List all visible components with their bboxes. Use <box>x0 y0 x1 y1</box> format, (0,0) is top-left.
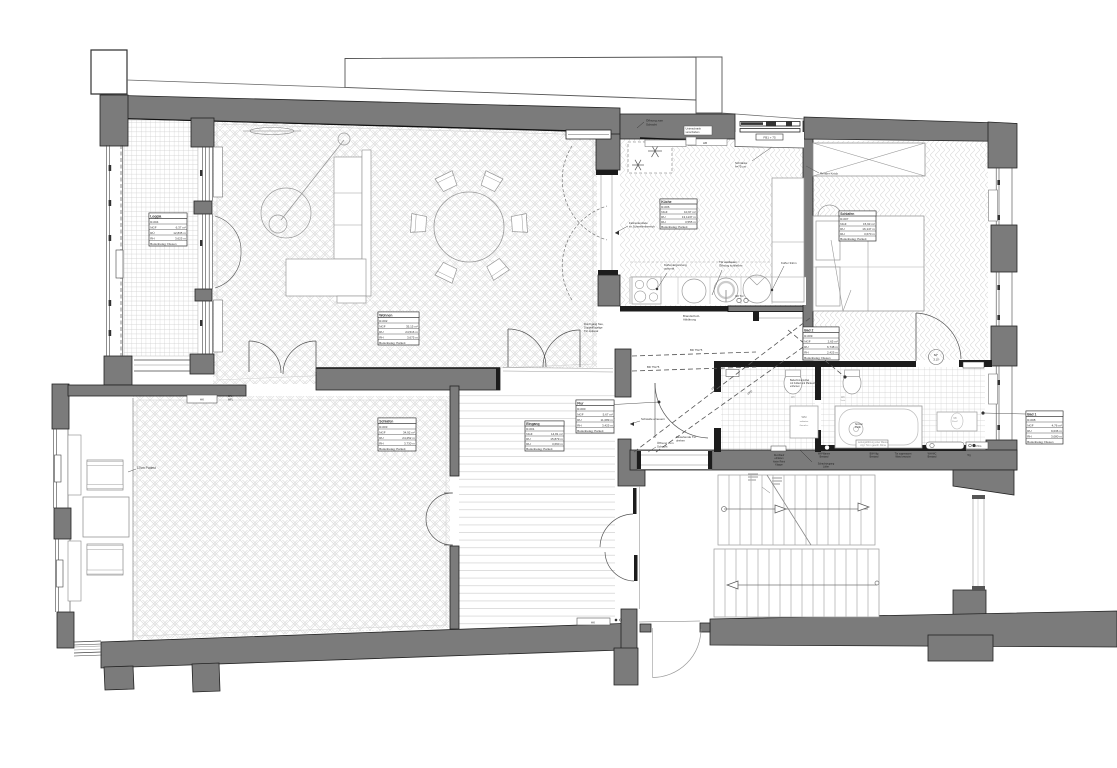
svg-text:h=75 cm: h=75 cm <box>735 165 747 169</box>
svg-text:NGF: NGF <box>804 339 811 343</box>
svg-text:G8 Tür: G8 Tür <box>735 294 744 298</box>
svg-text:Durchgang Neu,: Durchgang Neu, <box>584 322 604 326</box>
svg-text:R-003: R-003 <box>379 425 388 429</box>
svg-text:Bodenbelag: Fliesen: Bodenbelag: Fliesen <box>150 242 177 246</box>
svg-text:NGF: NGF <box>526 432 533 436</box>
svg-text:WM: WM <box>802 415 808 419</box>
svg-text:3,425 m: 3,425 m <box>602 423 613 427</box>
svg-text:11,089 m: 11,089 m <box>601 418 614 422</box>
svg-text:Klappe: Klappe <box>775 464 783 467</box>
svg-text:RU: RU <box>526 437 530 441</box>
svg-text:2,425 m: 2,425 m <box>827 350 838 354</box>
svg-text:RU: RU <box>840 227 844 231</box>
svg-text:NGF: NGF <box>840 222 847 226</box>
svg-text:WFL: WFL <box>228 399 234 402</box>
svg-text:Flußb: Flußb <box>855 427 862 429</box>
svg-text:Bad 1: Bad 1 <box>1027 412 1036 416</box>
svg-text:Badezimmermöbel: Badezimmermöbel <box>790 379 810 382</box>
svg-text:HB: HB <box>703 141 707 145</box>
svg-text:zzgl. Tür in geschl. Klima: zzgl. Tür in geschl. Klima <box>860 444 886 447</box>
svg-text:3,660 m: 3,660 m <box>552 442 563 446</box>
svg-text:Bodenbelag: Fliesen: Bodenbelag: Fliesen <box>1027 440 1054 444</box>
svg-text:RH: RH <box>661 220 665 224</box>
svg-text:Abklärung: Abklärung <box>683 318 696 322</box>
svg-text:RH: RH <box>1027 434 1031 438</box>
svg-text:R-008: R-008 <box>1027 418 1036 422</box>
svg-text:Flur: Flur <box>577 401 584 405</box>
svg-text:Leitungsführung unter Wanne: Leitungsführung unter Wanne <box>858 441 889 444</box>
svg-text:Loggia: Loggia <box>150 214 161 218</box>
svg-text:Bodenbelag: Fliesen: Bodenbelag: Fliesen <box>804 356 831 360</box>
svg-text:RH: RH <box>577 423 581 427</box>
svg-text:14,81 m²: 14,81 m² <box>551 432 563 436</box>
svg-text:Doppelflügelige: Doppelflügelige <box>584 326 603 330</box>
svg-text:24,252 m: 24,252 m <box>402 436 415 440</box>
svg-text:im Schwellenbereich: im Schwellenbereich <box>629 225 655 229</box>
svg-text:Bodenbelag: Parkett: Bodenbelag: Parkett <box>379 341 405 345</box>
svg-text:RH: RH <box>840 232 844 236</box>
svg-text:WC: WC <box>791 396 795 399</box>
svg-text:BD 75x75: BD 75x75 <box>647 365 660 369</box>
svg-text:13,1137 m: 13,1137 m <box>682 215 696 219</box>
svg-text:RU: RU <box>804 345 808 349</box>
svg-text:3,555 m: 3,555 m <box>685 220 696 224</box>
svg-text:RH: RH <box>526 442 530 446</box>
svg-text:Normal: Normal <box>855 423 863 426</box>
svg-text:optional: optional <box>664 267 674 271</box>
svg-text:R-000: R-000 <box>577 407 586 411</box>
svg-text:35,15 m²: 35,15 m² <box>406 324 418 328</box>
svg-text:12,835 m: 12,835 m <box>173 231 186 235</box>
svg-text:RU: RU <box>1027 429 1031 433</box>
svg-text:Schlafen: Schlafen <box>840 212 854 216</box>
svg-text:Wohnen: Wohnen <box>379 313 392 317</box>
svg-text:RH: RH <box>379 441 383 445</box>
svg-text:Schacht: Schacht <box>657 445 668 449</box>
svg-text:entfernen: entfernen <box>790 385 800 388</box>
svg-text:4,76 m²: 4,76 m² <box>1052 423 1062 427</box>
svg-text:HK: HK <box>200 398 204 402</box>
svg-text:HK: HK <box>591 621 595 625</box>
svg-text:RH: RH <box>150 236 154 240</box>
svg-text:Lüfter: Lüfter <box>823 466 829 469</box>
svg-text:Render Knick: Render Knick <box>820 172 839 176</box>
svg-text:Eingang: Eingang <box>526 422 539 426</box>
svg-text:Wand verputzt: Wand verputzt <box>895 456 911 459</box>
svg-text:Bodenbelag: Parkett: Bodenbelag: Parkett <box>526 447 552 451</box>
svg-text:Bestand: Bestand <box>870 456 879 459</box>
svg-text:Bestand: Bestand <box>820 456 829 459</box>
svg-text:Bodenbelag: Parkett: Bodenbelag: Parkett <box>661 225 687 229</box>
svg-text:15,93 m²: 15,93 m² <box>863 222 875 226</box>
svg-text:RH: RH <box>804 350 808 354</box>
svg-text:5,67 m²: 5,67 m² <box>603 412 613 416</box>
svg-text:anbieten: anbieten <box>800 420 809 423</box>
svg-text:3,675 m: 3,675 m <box>407 335 418 339</box>
svg-text:Vorb.: Vorb. <box>840 399 845 402</box>
svg-text:Bestand: Bestand <box>928 456 937 459</box>
svg-text:BD 75x75: BD 75x75 <box>690 348 703 352</box>
svg-text:6,748 m: 6,748 m <box>827 345 838 349</box>
svg-text:verschieben: verschieben <box>686 130 701 134</box>
svg-text:NGF: NGF <box>1027 423 1034 427</box>
svg-text:Schacht: Schacht <box>646 122 657 126</box>
svg-text:Öffnung schließen: Öffnung schließen <box>719 264 743 268</box>
svg-text:R-006: R-006 <box>661 205 670 209</box>
svg-text:24,516 m: 24,516 m <box>405 330 418 334</box>
svg-text:Tür optional: Tür optional <box>584 329 599 333</box>
svg-text:RÜ: RÜ <box>150 231 154 235</box>
svg-text:Küche: Küche <box>661 200 671 204</box>
svg-text:3,670 m: 3,670 m <box>864 232 875 236</box>
svg-text:NGF: NGF <box>661 210 668 214</box>
svg-text:Schwelle erneuern: Schwelle erneuern <box>641 417 665 421</box>
svg-text:6,37 m²: 6,37 m² <box>176 225 186 229</box>
svg-text:Wied?: Wied? <box>952 421 959 423</box>
svg-text:17cm Podest: 17cm Podest <box>137 466 156 470</box>
svg-text:WC: WC <box>841 396 845 399</box>
svg-text:RU: RU <box>661 215 665 219</box>
svg-text:NGF: NGF <box>150 225 157 229</box>
svg-text:R-001: R-001 <box>526 427 535 431</box>
svg-text:Bodenbelag: Parkett: Bodenbelag: Parkett <box>379 447 405 451</box>
svg-text:Bad 2: Bad 2 <box>804 328 813 332</box>
svg-text:R-009: R-009 <box>804 334 813 338</box>
svg-text:Bodenbelag: Parkett: Bodenbelag: Parkett <box>577 429 603 433</box>
svg-text:3,625 m: 3,625 m <box>175 236 186 240</box>
svg-text:10,97 m²: 10,97 m² <box>684 210 696 214</box>
svg-text:3,080 m: 3,080 m <box>1051 434 1062 438</box>
svg-text:34,92 m²: 34,92 m² <box>403 430 415 434</box>
svg-text:2.10: 2.10 <box>933 358 939 362</box>
svg-text:RH: RH <box>379 335 383 339</box>
svg-text:9,036 m: 9,036 m <box>1051 429 1062 433</box>
svg-text:62°: 62° <box>934 353 939 357</box>
svg-text:R-002: R-002 <box>379 319 388 323</box>
svg-text:3,730 m: 3,730 m <box>404 441 415 445</box>
svg-text:Schlafen: Schlafen <box>379 419 393 423</box>
svg-text:Geruchs.: Geruchs. <box>800 424 809 427</box>
svg-text:Bodenbelag: Parkett: Bodenbelag: Parkett <box>840 237 866 241</box>
svg-text:NB: NB <box>953 417 957 420</box>
svg-text:mit Fußteil und Plankenbel: mit Fußteil und Plankenbel <box>790 382 818 385</box>
svg-text:15,879 m: 15,879 m <box>550 437 563 441</box>
svg-text:2,65 m²: 2,65 m² <box>828 339 838 343</box>
svg-text:Koffer 34cm: Koffer 34cm <box>781 261 797 265</box>
svg-text:NGF: NGF <box>577 412 584 416</box>
svg-text:drehen: drehen <box>676 439 685 443</box>
svg-text:RU: RU <box>379 330 383 334</box>
svg-text:FB1 + 75: FB1 + 75 <box>763 136 776 140</box>
svg-text:NGF: NGF <box>379 324 386 328</box>
svg-text:16,147 m: 16,147 m <box>862 227 875 231</box>
svg-text:RU: RU <box>577 418 581 422</box>
svg-text:R-007: R-007 <box>840 217 849 221</box>
svg-text:Unterschrank: Unterschrank <box>686 127 702 131</box>
svg-text:NGF: NGF <box>379 430 386 434</box>
svg-text:RU: RU <box>379 436 383 440</box>
svg-text:R-004: R-004 <box>150 220 159 224</box>
